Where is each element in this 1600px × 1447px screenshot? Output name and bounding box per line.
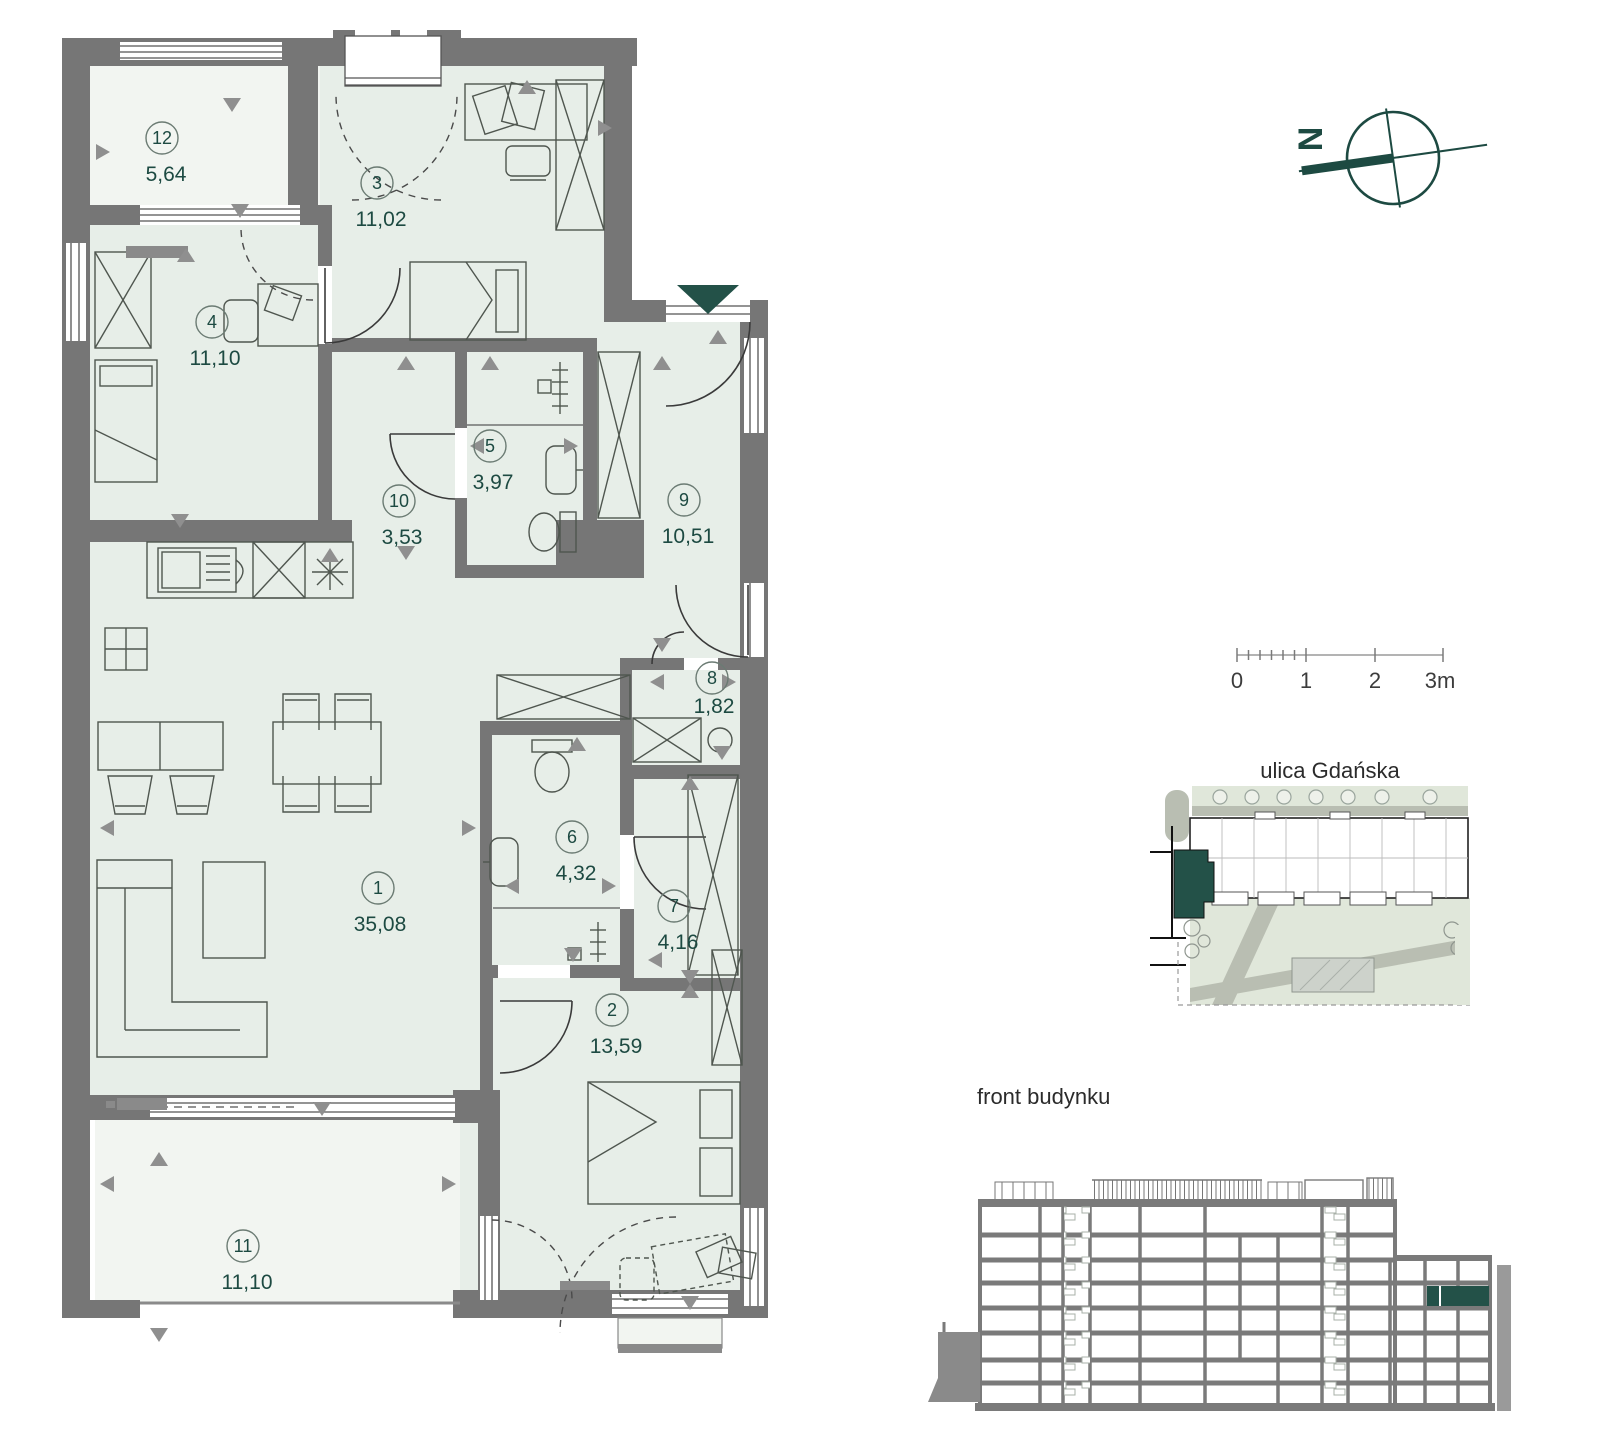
scale-3m: 3m (1425, 668, 1456, 693)
svg-text:11,10: 11,10 (222, 1271, 273, 1294)
scale-1: 1 (1300, 668, 1312, 693)
svg-text:11: 11 (234, 1236, 253, 1256)
elevation-highlighted-unit (1427, 1286, 1489, 1306)
floor-plan: 1 35,08 2 13,59 3 11,02 4 11,10 5 3,97 6… (62, 30, 768, 1353)
architectural-sheet: 1 35,08 2 13,59 3 11,02 4 11,10 5 3,97 6… (0, 0, 1600, 1447)
svg-text:4,16: 4,16 (658, 931, 699, 954)
svg-text:9: 9 (679, 490, 689, 510)
svg-text:2: 2 (607, 1000, 617, 1020)
svg-text:10: 10 (389, 491, 409, 511)
sheet-svg: 1 35,08 2 13,59 3 11,02 4 11,10 5 3,97 6… (0, 0, 1600, 1447)
loggia-12-floor (90, 66, 320, 205)
site-plan: ulica Gdańska (1150, 758, 1470, 1005)
svg-text:4: 4 (207, 312, 217, 332)
svg-text:7: 7 (669, 896, 679, 916)
svg-text:1: 1 (373, 878, 383, 898)
svg-text:13,59: 13,59 (590, 1035, 643, 1058)
svg-text:3,97: 3,97 (473, 471, 514, 494)
svg-text:8: 8 (707, 668, 717, 688)
stair-core (1064, 1203, 1090, 1403)
stair-core-2 (1323, 1203, 1348, 1403)
svg-text:35,08: 35,08 (354, 913, 407, 936)
svg-text:1,82: 1,82 (694, 695, 735, 718)
svg-text:5,64: 5,64 (146, 163, 187, 186)
svg-text:3: 3 (372, 173, 382, 193)
scale-2: 2 (1369, 668, 1381, 693)
scale-bar: 0 1 2 3m (1231, 648, 1455, 693)
svg-text:3,53: 3,53 (382, 526, 423, 549)
svg-text:4,32: 4,32 (556, 862, 597, 885)
svg-text:11,10: 11,10 (190, 347, 241, 370)
scale-0: 0 (1231, 668, 1243, 693)
svg-text:6: 6 (567, 827, 577, 847)
svg-text:11,02: 11,02 (356, 208, 407, 231)
elevation-label: front budynku (977, 1084, 1110, 1109)
building-elevation: front budynku (928, 1084, 1511, 1411)
north-label: N (1292, 127, 1330, 152)
street-label: ulica Gdańska (1260, 758, 1400, 783)
terrace-11-floor (95, 1120, 460, 1303)
north-compass-icon: N (1292, 95, 1494, 220)
svg-text:5: 5 (485, 436, 495, 456)
svg-text:12: 12 (152, 128, 172, 148)
svg-text:10,51: 10,51 (662, 525, 715, 548)
